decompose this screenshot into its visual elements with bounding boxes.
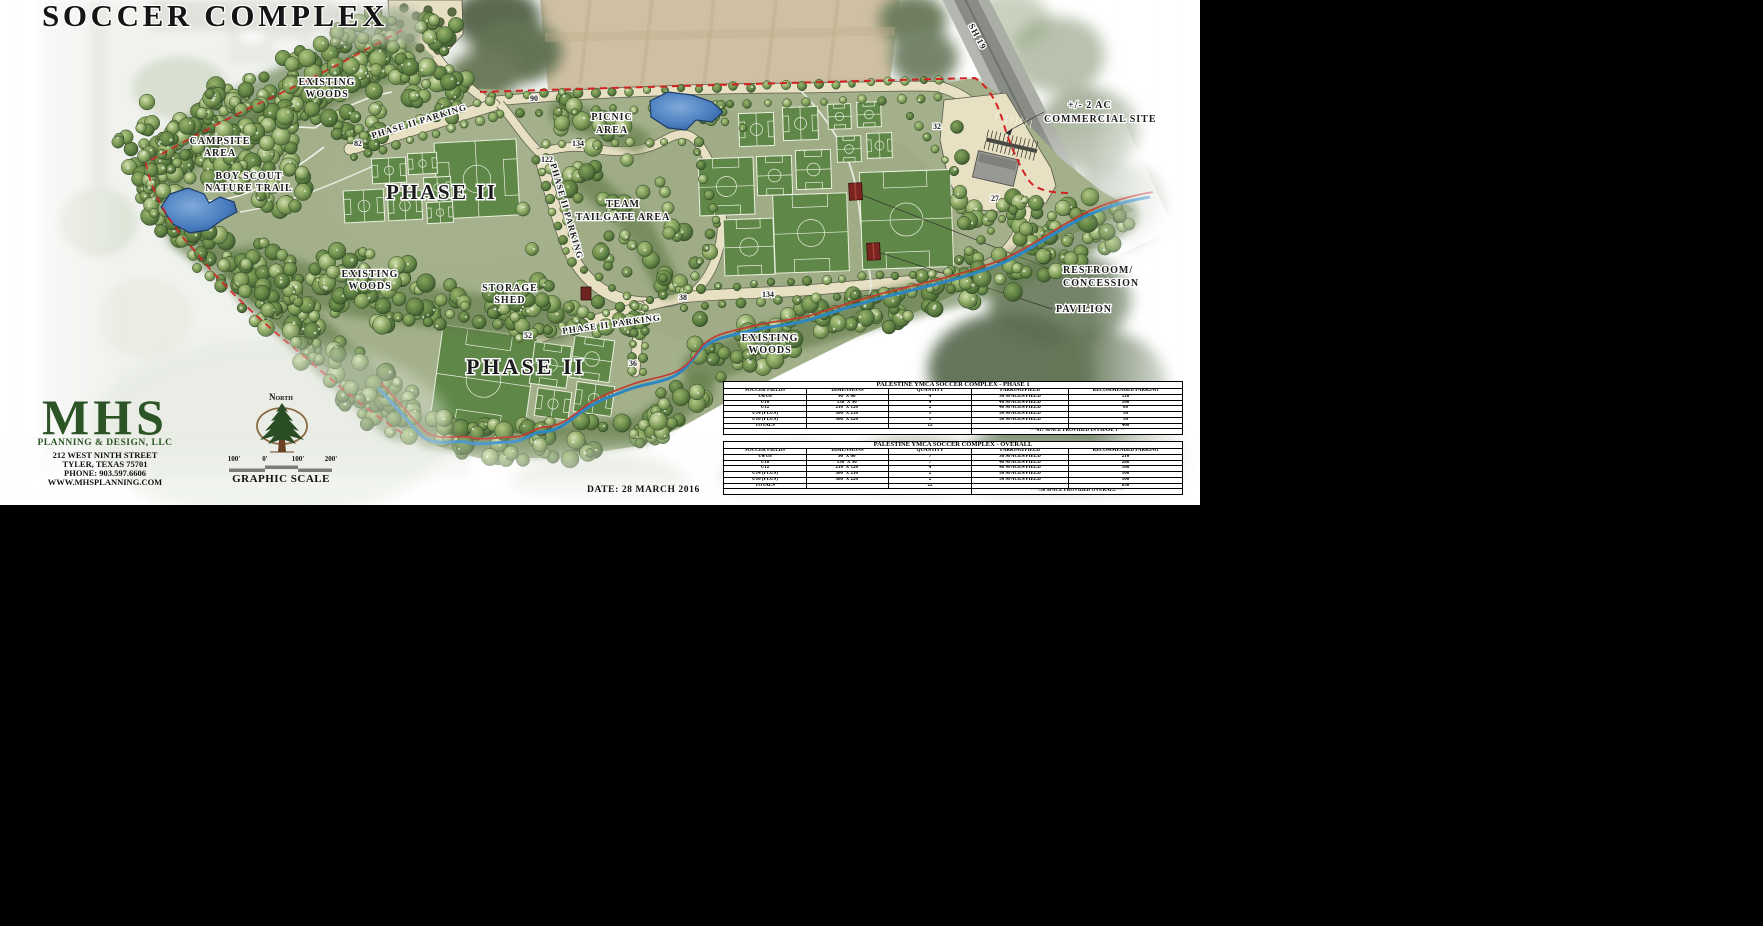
svg-text:STORAGE: STORAGE — [482, 283, 538, 294]
svg-text:WOODS: WOODS — [305, 89, 348, 100]
svg-text:CONCESSION: CONCESSION — [1063, 278, 1139, 289]
svg-text:AREA: AREA — [204, 148, 236, 159]
svg-text:RESTROOM/: RESTROOM/ — [1063, 265, 1133, 276]
svg-text:TAILGATE AREA: TAILGATE AREA — [576, 212, 671, 223]
svg-text:North: North — [269, 392, 293, 402]
svg-text:PHASE II: PHASE II — [386, 180, 498, 204]
svg-text:PAVILION: PAVILION — [1056, 304, 1112, 315]
svg-text:WOODS: WOODS — [348, 281, 391, 292]
svg-text:52: 52 — [524, 331, 532, 340]
svg-text:EXISTING: EXISTING — [342, 269, 399, 280]
svg-text:122: 122 — [541, 155, 553, 164]
svg-text:EXISTING: EXISTING — [299, 77, 356, 88]
svg-text:38: 38 — [679, 293, 687, 302]
svg-text:COMMERCIAL SITE: COMMERCIAL SITE — [1044, 114, 1157, 125]
svg-text:EXISTING: EXISTING — [742, 333, 799, 344]
svg-text:SOCCER COMPLEX: SOCCER COMPLEX — [42, 0, 390, 33]
svg-text:36: 36 — [629, 359, 637, 368]
svg-text:AREA: AREA — [596, 125, 628, 136]
svg-text:CAMPSITE: CAMPSITE — [190, 136, 251, 147]
svg-text:NATURE TRAIL: NATURE TRAIL — [205, 183, 292, 194]
svg-text:BOY SCOUT: BOY SCOUT — [215, 171, 282, 182]
svg-text:100': 100' — [228, 455, 241, 463]
svg-text:100': 100' — [292, 455, 305, 463]
svg-text:134: 134 — [572, 139, 584, 148]
svg-text:82: 82 — [354, 139, 362, 148]
svg-text:TEAM: TEAM — [606, 199, 640, 210]
svg-text:PHASE II: PHASE II — [466, 354, 586, 379]
svg-text:27: 27 — [991, 194, 999, 203]
svg-text:PICNIC: PICNIC — [591, 112, 633, 123]
svg-text:0': 0' — [262, 455, 268, 463]
svg-text:200': 200' — [325, 455, 338, 463]
svg-text:32: 32 — [933, 122, 941, 131]
svg-text:90: 90 — [530, 94, 538, 103]
svg-text:WOODS: WOODS — [748, 345, 791, 356]
svg-text:134: 134 — [762, 290, 774, 299]
svg-text:SHED: SHED — [494, 295, 525, 306]
svg-text:GRAPHIC SCALE: GRAPHIC SCALE — [232, 473, 330, 485]
svg-text:+/- 2 AC: +/- 2 AC — [1068, 100, 1112, 111]
